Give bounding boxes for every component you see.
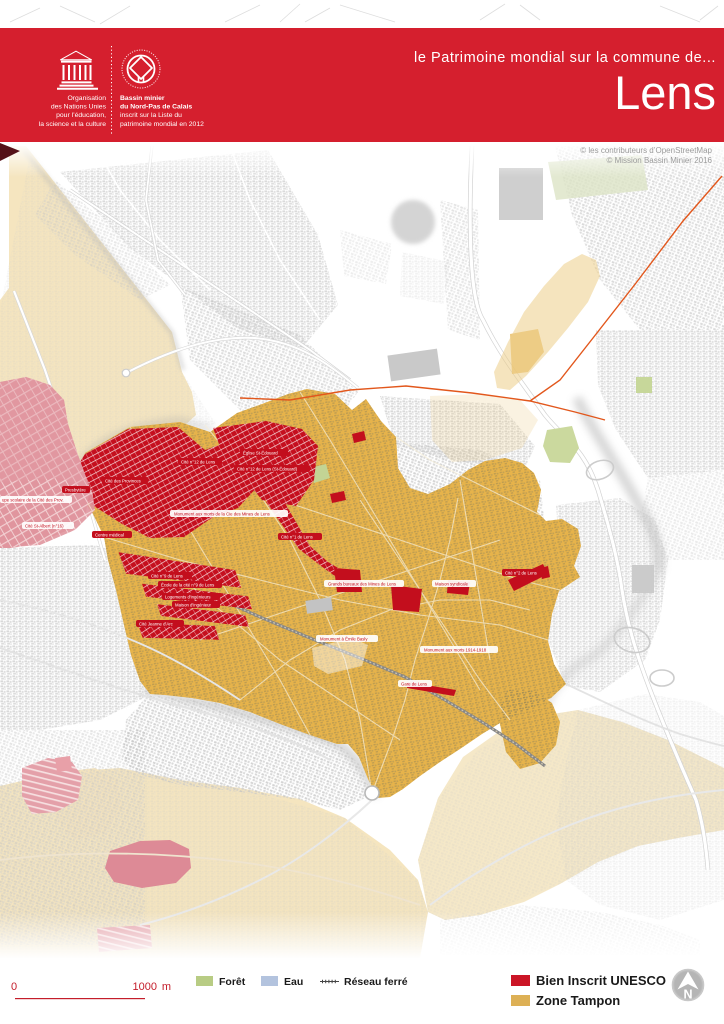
svg-text:Bien Inscrit UNESCO: Bien Inscrit UNESCO xyxy=(536,973,666,988)
svg-text:Cité n°1 de Lens: Cité n°1 de Lens xyxy=(281,535,313,540)
svg-text:m: m xyxy=(162,981,171,993)
svg-text:des Nations Unies: des Nations Unies xyxy=(51,104,107,111)
svg-text:la science et la culture: la science et la culture xyxy=(39,121,106,128)
svg-text:le Patrimoine mondial sur la c: le Patrimoine mondial sur la commune de.… xyxy=(414,50,716,66)
svg-text:© Mission Bassin Minier 2016: © Mission Bassin Minier 2016 xyxy=(607,156,713,165)
svg-text:Cité n°9 de Lens: Cité n°9 de Lens xyxy=(151,574,183,579)
svg-text:Cité Jeanne d'Arc: Cité Jeanne d'Arc xyxy=(139,622,174,627)
svg-text:upe scolaire de la Cité des Pr: upe scolaire de la Cité des Prov. xyxy=(2,498,64,503)
svg-text:Cité n°12 de Lens (St-Édouard): Cité n°12 de Lens (St-Édouard) xyxy=(237,467,298,472)
svg-text:Centre médical: Centre médical xyxy=(95,533,124,538)
svg-text:Maison d'ingénieur: Maison d'ingénieur xyxy=(175,603,212,608)
svg-text:Cité n°12 de Lens: Cité n°12 de Lens xyxy=(181,460,215,465)
svg-text:Logements d'ingénieurs: Logements d'ingénieurs xyxy=(165,595,211,600)
svg-text:Eau: Eau xyxy=(284,976,303,988)
svg-text:pour l’éducation,: pour l’éducation, xyxy=(56,112,106,119)
svg-text:N: N xyxy=(683,988,692,1002)
svg-text:Réseau ferré: Réseau ferré xyxy=(344,976,408,988)
svg-text:Cité des Provinces: Cité des Provinces xyxy=(105,479,141,484)
svg-text:0: 0 xyxy=(11,981,17,993)
svg-text:© les contributeurs d’OpenStre: © les contributeurs d’OpenStreetMap xyxy=(580,146,712,155)
svg-text:Cité St-Albert (n°16): Cité St-Albert (n°16) xyxy=(25,524,64,529)
svg-text:Organisation: Organisation xyxy=(67,95,106,102)
svg-text:Lens: Lens xyxy=(614,66,716,119)
svg-text:Monument aux morts 1914-1918: Monument aux morts 1914-1918 xyxy=(424,648,487,653)
svg-text:Monument à Émile Basly: Monument à Émile Basly xyxy=(320,637,368,642)
svg-text:Forêt: Forêt xyxy=(219,976,246,988)
svg-text:Presbytère: Presbytère xyxy=(65,488,86,493)
svg-text:Grands bureaux des Mines de Le: Grands bureaux des Mines de Lens xyxy=(328,582,396,587)
svg-text:inscrit sur la Liste du: inscrit sur la Liste du xyxy=(120,112,182,119)
svg-text:Zone Tampon: Zone Tampon xyxy=(536,993,620,1008)
svg-text:École de la cité n°9 de Lens: École de la cité n°9 de Lens xyxy=(161,583,214,588)
svg-text:1000: 1000 xyxy=(133,981,157,993)
svg-text:Gare de Lens: Gare de Lens xyxy=(401,682,427,687)
svg-text:Église St-Édouard: Église St-Édouard xyxy=(243,451,278,456)
svg-text:patrimoine mondial en 2012: patrimoine mondial en 2012 xyxy=(120,121,204,128)
svg-text:Maison syndicale: Maison syndicale xyxy=(435,582,469,587)
svg-text:Monument aux morts de la Cie d: Monument aux morts de la Cie des Mines d… xyxy=(174,512,270,517)
svg-text:Cité n°2 de Lens: Cité n°2 de Lens xyxy=(505,571,537,576)
svg-text:Bassin minier: Bassin minier xyxy=(120,95,165,102)
svg-text:du Nord-Pas de Calais: du Nord-Pas de Calais xyxy=(120,104,192,111)
